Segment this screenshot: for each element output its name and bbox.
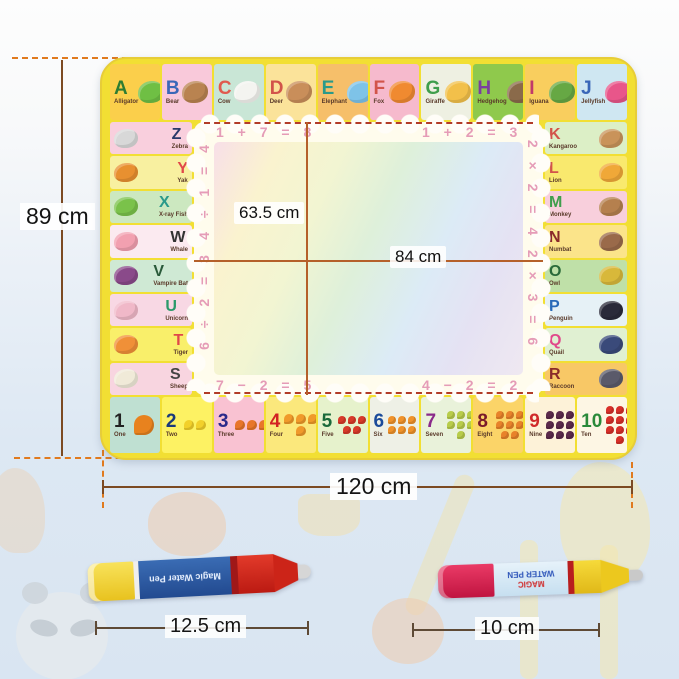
pen-label-band: MAGIC WATER PEN (493, 561, 568, 597)
pen-barrel (237, 554, 275, 594)
letter-cell-G: GGiraffe (421, 64, 471, 120)
letter-glyph: M (549, 195, 571, 211)
letter-glyph: H (477, 79, 506, 98)
penguin-illustration (599, 301, 623, 320)
alphabet-row-top: AAlligatorBBearCCowDDeerEElephantFFoxGGi… (110, 64, 627, 120)
letter-glyph: B (166, 79, 180, 98)
pen-left-length-label: 12.5 cm (165, 615, 246, 638)
lion-illustration (599, 163, 623, 182)
animal-name-label: Monkey (549, 212, 571, 218)
number-glyph: 8 (477, 412, 492, 431)
fruit-count-illustration (492, 411, 523, 439)
width-measure-tick-right (631, 480, 633, 494)
letter-cell-S: SSheep (110, 363, 192, 395)
pen-cap (437, 564, 494, 599)
letter-cell-E: EElephant (318, 64, 368, 120)
pen-cone (273, 553, 299, 592)
tiger-illustration (114, 335, 138, 354)
equation-right-bottom: 2 × 3 = 6 (523, 240, 543, 360)
number-cell-2: 2Two (162, 397, 212, 453)
animal-name-label: Penguin (549, 316, 573, 322)
background-squirrel-art (0, 468, 45, 553)
letter-glyph: V (153, 264, 188, 280)
number-glyph: 1 (114, 412, 126, 431)
letter-cell-O: OOwl (545, 260, 627, 292)
doodle-mat: AAlligatorBBearCCowDDeerEElephantFFoxGGi… (100, 57, 637, 460)
number-name-label: Three (218, 432, 234, 438)
quail-illustration (599, 335, 623, 354)
alligator-illustration (138, 81, 160, 103)
letter-cell-L: LLion (545, 156, 627, 188)
pen-label-text: MAGIC WATER PEN (493, 561, 568, 597)
animal-name-label: Kangaroo (549, 144, 577, 150)
letter-cell-R: RRaccoon (545, 363, 627, 395)
fruit-count-illustration (602, 406, 627, 444)
giraffe-illustration (445, 81, 471, 103)
number-cell-10: 10Ten (577, 397, 627, 453)
magic-water-pen-large: Magic Water Pen (87, 552, 311, 602)
pen-right-tick-left (412, 623, 414, 637)
drawing-area-frame: 1 + 7 = 8 1 + 2 = 3 4 ÷ 1 = 4 6 ÷ 2 = 3 … (194, 122, 543, 395)
number-cell-7: 7Seven (421, 397, 471, 453)
animal-name-label: Iguana (529, 99, 548, 105)
unicorn-illustration (114, 301, 138, 320)
animal-name-label: Cow (218, 99, 232, 105)
number-cell-3: 3Three (214, 397, 264, 453)
letter-cell-H: HHedgehog (473, 64, 523, 120)
pen-right-tick-right (598, 623, 600, 637)
background-panda-face-art (16, 592, 108, 679)
inner-dashed-guide-bottom (204, 392, 533, 394)
animal-name-label: Elephant (322, 99, 347, 105)
letter-cell-F: FFox (370, 64, 420, 120)
equation-top-left: 1 + 7 = 8 (216, 122, 316, 142)
number-cell-5: 5Five (318, 397, 368, 453)
animal-name-label: Raccoon (549, 384, 574, 390)
fruit-count-illustration (334, 416, 368, 434)
letter-cell-A: AAlligator (110, 64, 160, 120)
number-glyph: 6 (374, 412, 385, 431)
letter-cell-K: KKangaroo (545, 122, 627, 154)
monkey-illustration (599, 197, 623, 216)
letter-glyph: A (114, 79, 138, 98)
sheep-illustration (114, 369, 138, 388)
letter-glyph: X (159, 195, 188, 211)
number-name-label: Six (374, 432, 385, 438)
numbat-illustration (599, 232, 623, 251)
fruit-count-illustration (126, 415, 160, 435)
magic-water-pen-small: MAGIC WATER PEN (437, 558, 643, 598)
fox-illustration (389, 81, 415, 103)
inner-width-measure-line (194, 260, 543, 262)
iguana-illustration (549, 81, 575, 103)
letter-cell-Y: YYak (110, 156, 192, 188)
number-glyph: 3 (218, 412, 234, 431)
number-cell-9: 9Nine (525, 397, 575, 453)
deer-illustration (286, 81, 312, 103)
number-glyph: 7 (425, 412, 443, 431)
numbers-row-bottom: 1One2Two3Three4Four5Five6Six7Seven8Eight… (110, 397, 627, 453)
letter-cell-P: PPenguin (545, 294, 627, 326)
hedgehog-illustration (507, 81, 524, 103)
letter-glyph: J (581, 79, 605, 98)
number-cell-4: 4Four (266, 397, 316, 453)
number-name-label: One (114, 432, 126, 438)
number-glyph: 4 (270, 412, 283, 431)
number-glyph: 5 (322, 412, 334, 431)
pen-tip (297, 564, 311, 579)
background-panda-eye-art (28, 617, 59, 639)
number-name-label: Nine (529, 432, 542, 438)
number-name-label: Ten (581, 432, 602, 438)
animal-name-label: Numbat (549, 247, 571, 253)
letter-glyph: I (529, 79, 548, 98)
background-crown-art (298, 494, 360, 536)
letter-cell-W: WWhale (110, 225, 192, 257)
letter-cell-Q: QQuail (545, 328, 627, 360)
letter-cell-D: DDeer (266, 64, 316, 120)
equation-left-bottom: 6 ÷ 2 = 3 (194, 240, 214, 360)
width-measure-tick-left (102, 480, 104, 494)
number-glyph: 2 (166, 412, 178, 431)
fruit-count-illustration (177, 420, 211, 430)
background-panda-ear-art (22, 582, 48, 604)
animal-name-label: Giraffe (425, 99, 444, 105)
equation-top-right: 1 + 2 = 3 (422, 122, 522, 142)
letter-cell-I: IIguana (525, 64, 575, 120)
raccoon-illustration (599, 369, 623, 388)
number-cell-1: 1One (110, 397, 160, 453)
letter-glyph: R (549, 367, 574, 383)
number-name-label: Eight (477, 432, 492, 438)
pen-barrel (573, 560, 601, 594)
letter-glyph: N (549, 230, 571, 246)
number-name-label: Two (166, 432, 178, 438)
animal-name-label: Bear (166, 99, 180, 105)
animal-name-label: Alligator (114, 99, 138, 105)
fruit-count-illustration (384, 416, 419, 434)
pen-label-line2: WATER PEN (507, 569, 554, 580)
number-name-label: Seven (425, 432, 443, 438)
letter-glyph: C (218, 79, 232, 98)
animal-name-label: Jellyfish (581, 99, 605, 105)
elephant-illustration (347, 81, 368, 103)
background-giraffe-leg-art (520, 540, 538, 679)
inner-height-label: 63.5 cm (234, 202, 304, 224)
background-fox-art (148, 492, 226, 556)
pen-left-tick-right (307, 621, 309, 635)
yak-illustration (114, 163, 138, 182)
letter-glyph: E (322, 79, 347, 98)
number-glyph: 10 (581, 412, 602, 431)
fruit-count-illustration (542, 411, 575, 439)
kangaroo-illustration (599, 129, 623, 148)
letter-cell-N: NNumbat (545, 225, 627, 257)
letter-glyph: F (374, 79, 386, 98)
letter-glyph: K (549, 127, 577, 143)
alphabet-column-left: ZZebraYYakXX-ray FishWWhaleVVampire BatU… (110, 122, 192, 395)
letter-glyph: P (549, 299, 573, 315)
letter-cell-B: BBear (162, 64, 212, 120)
pen-label-line1: MAGIC (518, 578, 545, 588)
letter-glyph: G (425, 79, 444, 98)
pen-cap (87, 561, 135, 601)
pen-cone (600, 559, 629, 593)
letter-cell-J: JJellyfish (577, 64, 627, 120)
letter-cell-U: UUnicorn (110, 294, 192, 326)
bear-illustration (182, 81, 208, 103)
inner-dashed-guide-top (204, 122, 533, 124)
number-cell-8: 8Eight (473, 397, 523, 453)
pen-label-text: Magic Water Pen (138, 556, 232, 599)
mat-width-label: 120 cm (330, 473, 417, 500)
number-name-label: Four (270, 432, 283, 438)
pen-left-tick-left (95, 621, 97, 635)
drawing-area (214, 142, 523, 375)
animal-name-label: Vampire Bat (153, 281, 188, 287)
letter-cell-T: TTiger (110, 328, 192, 360)
fruit-count-illustration (234, 420, 264, 430)
fruit-count-illustration (443, 411, 471, 439)
letter-glyph: D (270, 79, 284, 98)
fruit-count-illustration (283, 414, 316, 436)
letter-cell-C: CCow (214, 64, 264, 120)
number-cell-6: 6Six (370, 397, 420, 453)
letter-cell-X: XX-ray Fish (110, 191, 192, 223)
owl-illustration (599, 266, 623, 285)
pen-tip (629, 569, 643, 580)
zebra-illustration (114, 129, 138, 148)
background-fox-head-art (372, 598, 444, 664)
number-name-label: Five (322, 432, 334, 438)
animal-name-label: Fox (374, 99, 386, 105)
letter-cell-Z: ZZebra (110, 122, 192, 154)
jellyfish-illustration (605, 81, 627, 103)
whale-illustration (114, 232, 138, 251)
letter-cell-V: VVampire Bat (110, 260, 192, 292)
height-measure-line (61, 60, 63, 456)
product-dimension-image: 89 cm 120 cm AAlligatorBBearCCowDDeerEEl… (0, 0, 679, 679)
pen-label-band: Magic Water Pen (138, 556, 232, 599)
mat-height-label: 89 cm (20, 203, 95, 230)
letter-cell-M: MMonkey (545, 191, 627, 223)
x-ray-fish-illustration (114, 197, 138, 216)
equation-right-top: 2 × 2 = 4 (523, 130, 543, 250)
number-glyph: 9 (529, 412, 542, 431)
animal-name-label: X-ray Fish (159, 212, 188, 218)
animal-name-label: Deer (270, 99, 284, 105)
dashed-guide-bottom-left-v (102, 450, 104, 508)
vampire-bat-illustration (114, 266, 138, 285)
alphabet-column-right: KKangarooLLionMMonkeyNNumbatOOwlPPenguin… (545, 122, 627, 395)
inner-width-label: 84 cm (390, 246, 446, 268)
inner-height-measure-line (306, 122, 308, 395)
cow-illustration (234, 81, 260, 103)
pen-right-length-label: 10 cm (475, 617, 539, 640)
animal-name-label: Hedgehog (477, 99, 506, 105)
equation-left-top: 4 ÷ 1 = 4 (194, 130, 214, 250)
